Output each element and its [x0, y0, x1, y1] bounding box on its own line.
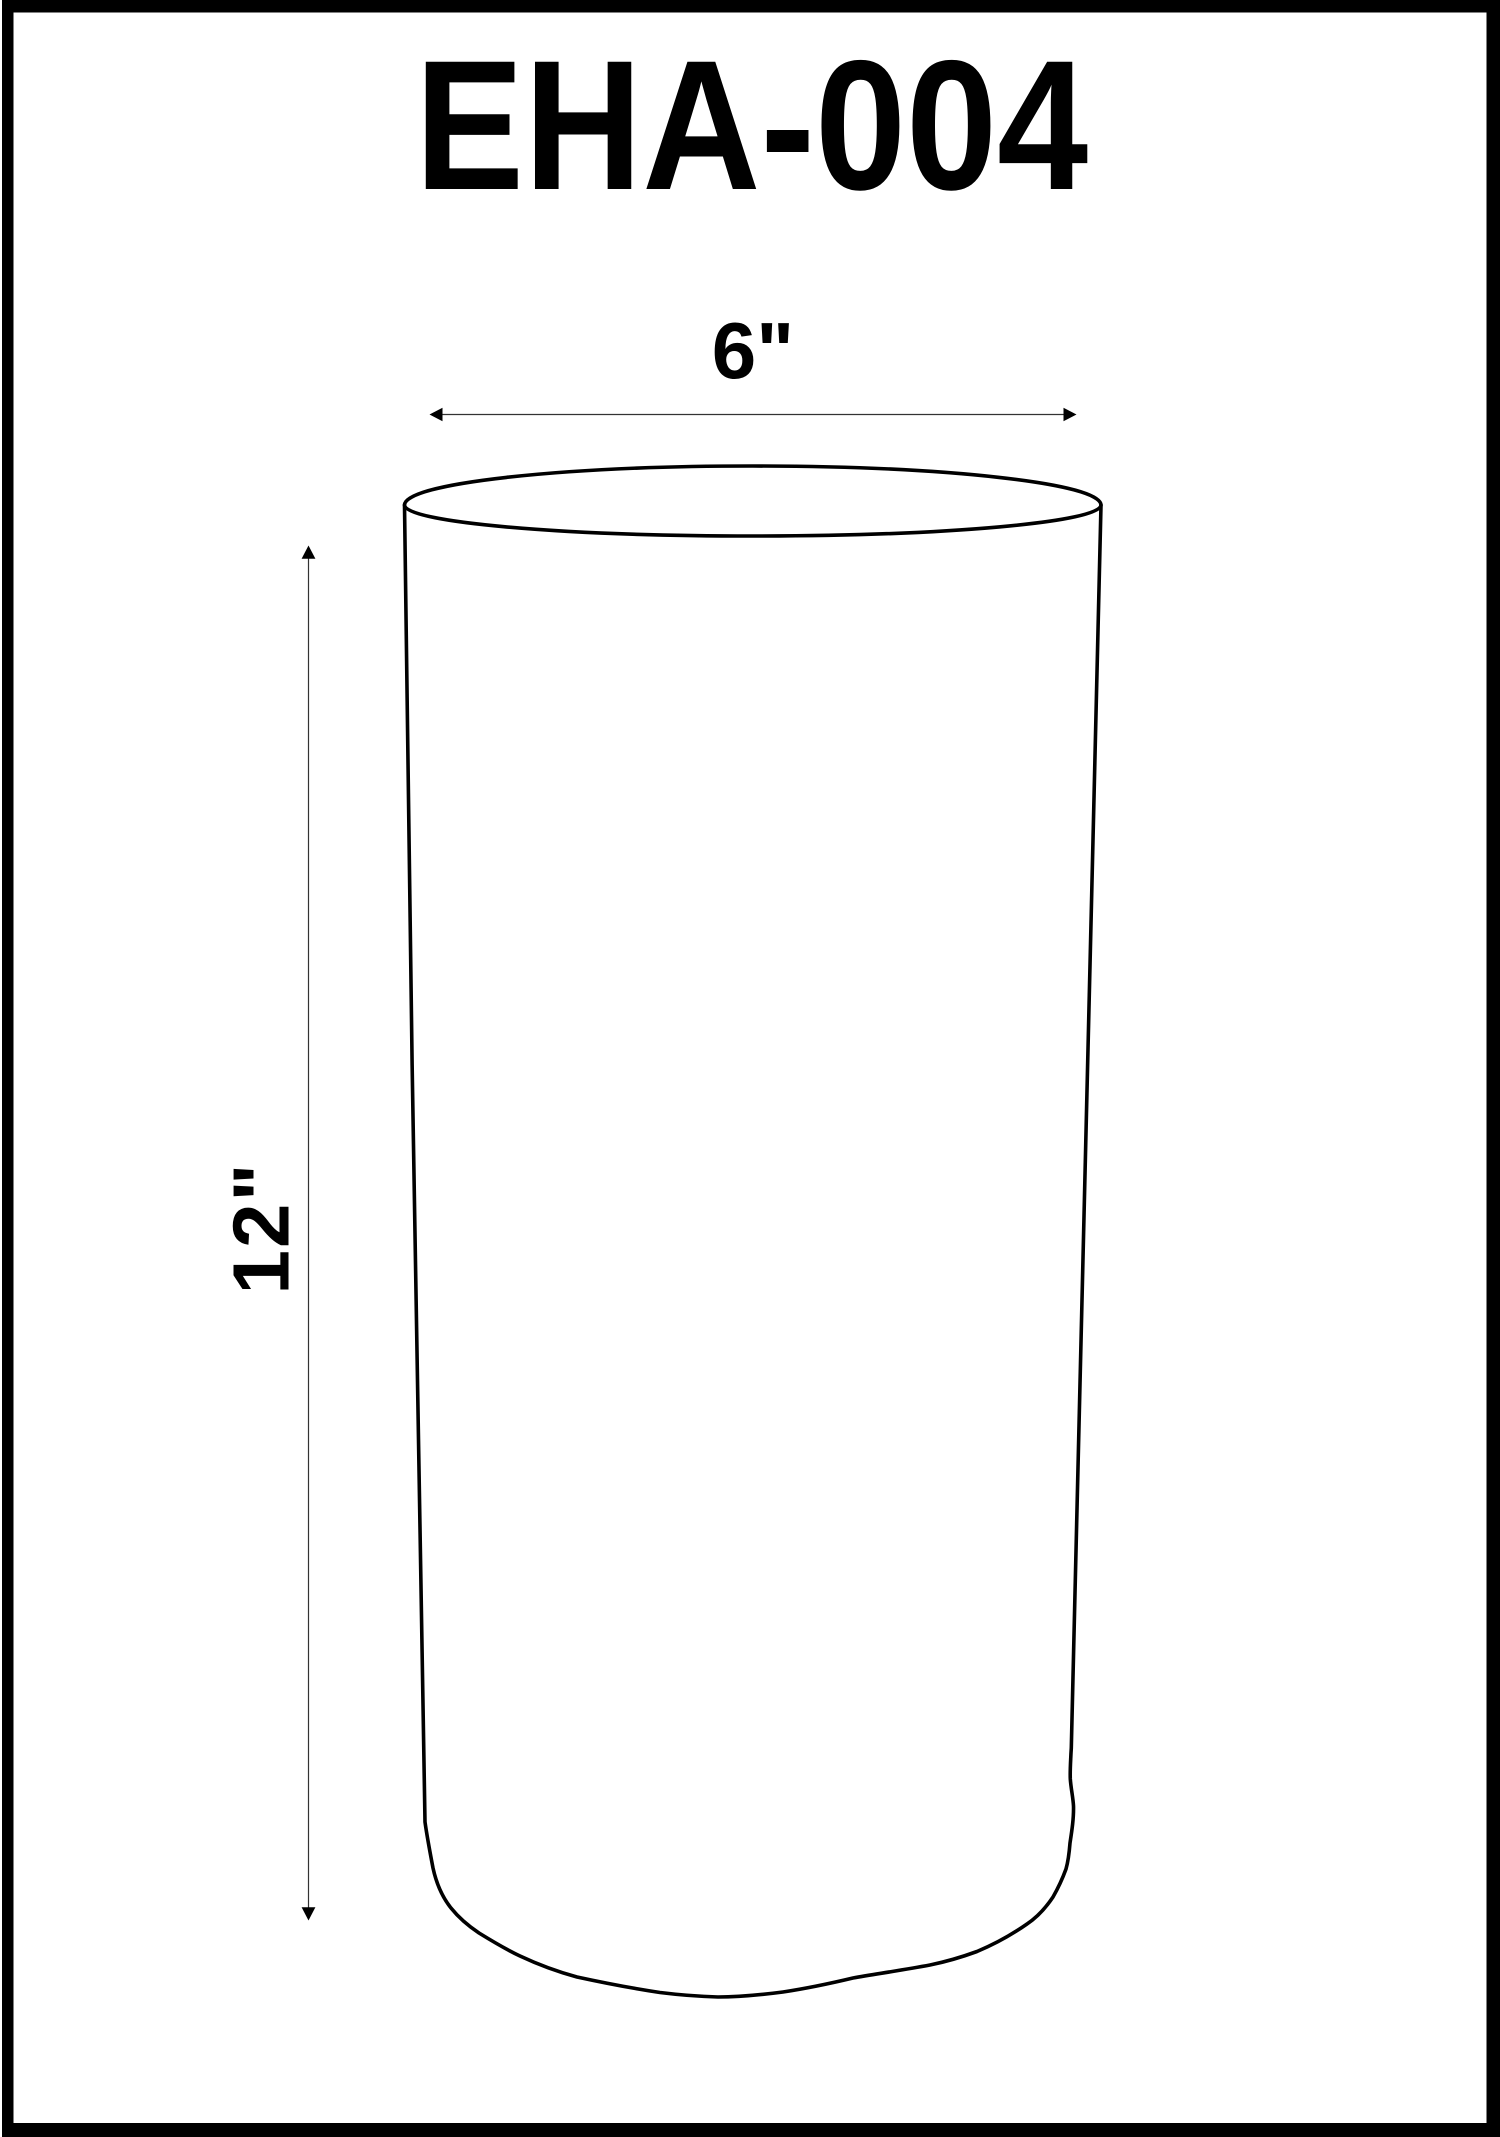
svg-text:12": 12"	[217, 1164, 306, 1295]
svg-text:EHA-004: EHA-004	[415, 23, 1088, 230]
svg-text:6": 6"	[712, 306, 794, 395]
